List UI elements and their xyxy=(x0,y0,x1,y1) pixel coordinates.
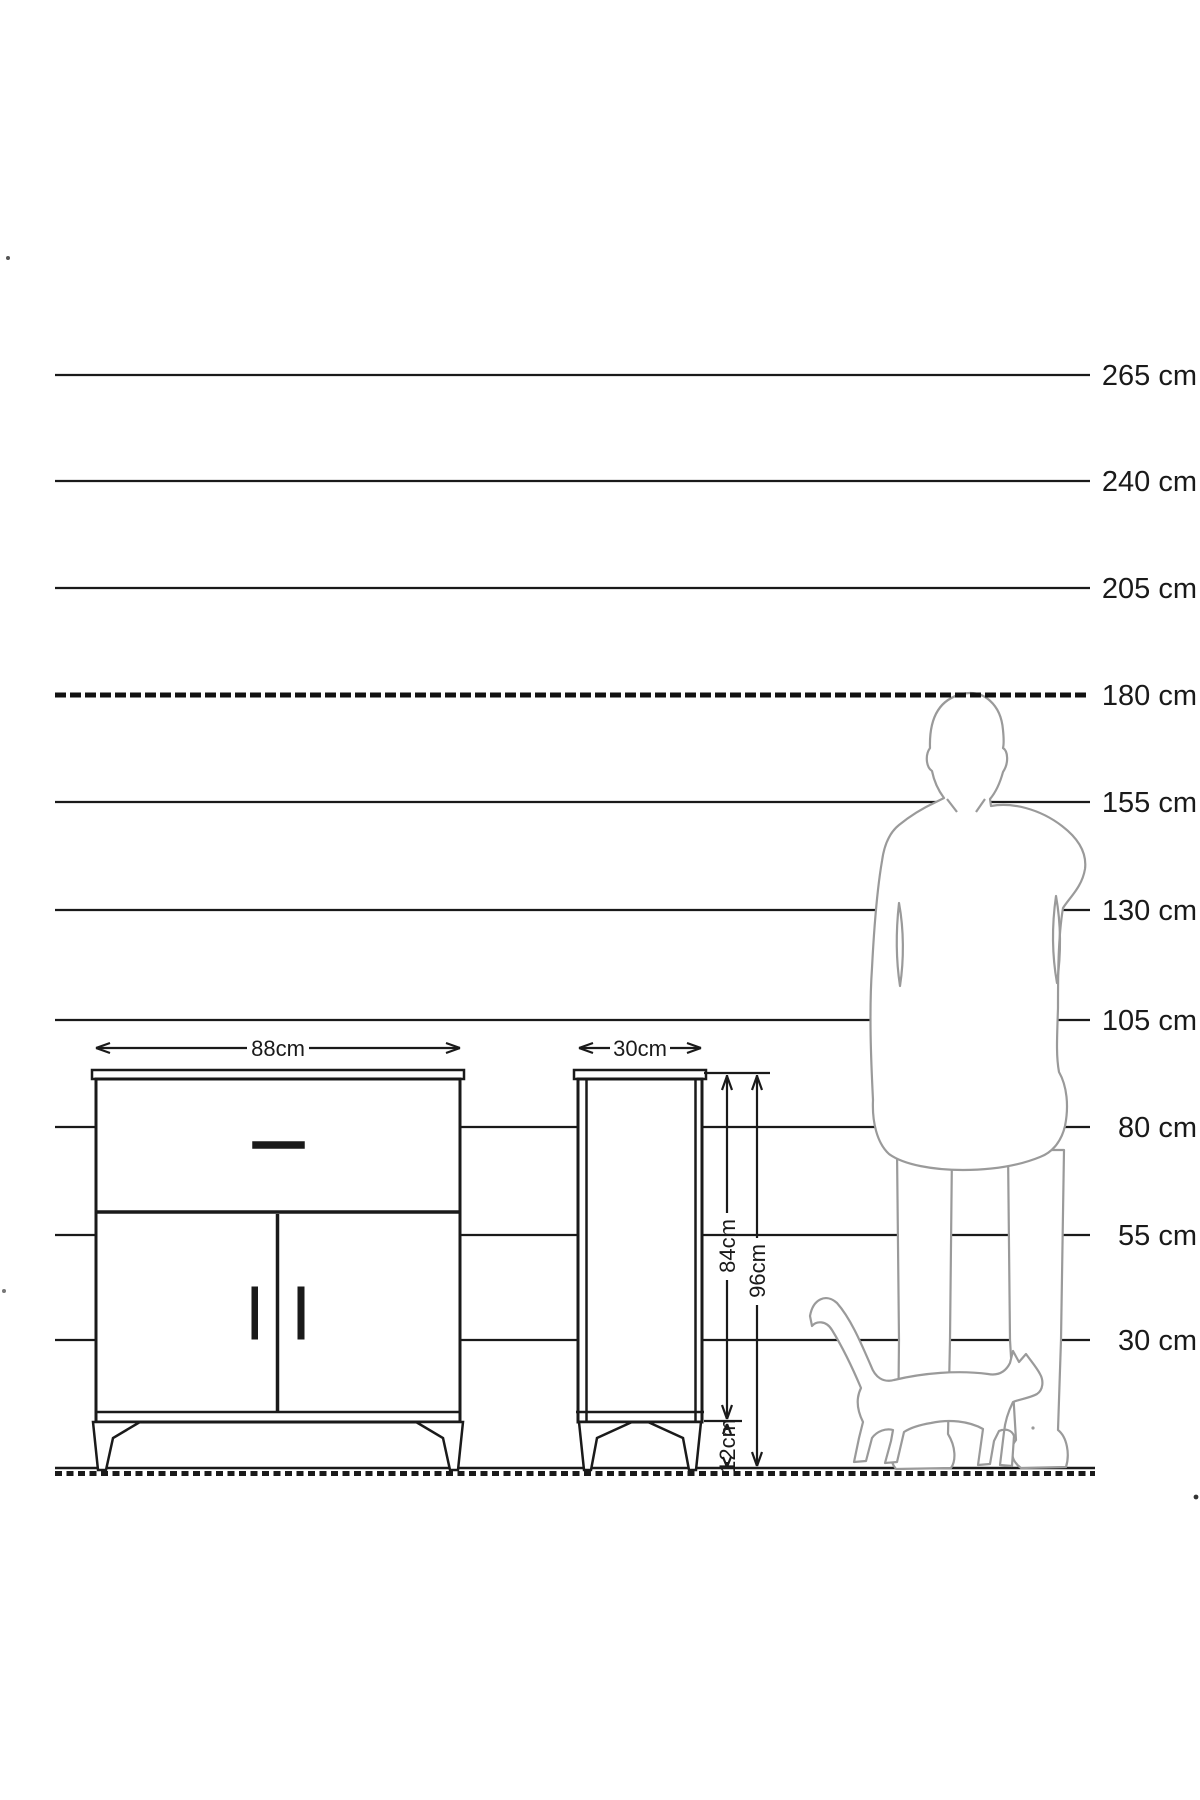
front-leg-left xyxy=(93,1422,140,1470)
scale-label-80cm: 80 cm xyxy=(1118,1112,1197,1144)
depth-dimension-label: 30cm xyxy=(613,1036,667,1061)
leg-height-label: 12cm xyxy=(715,1419,740,1473)
scale-label-155cm: 155 cm xyxy=(1102,787,1197,819)
scale-label-180cm: 180 cm xyxy=(1102,680,1197,712)
side-leg-right xyxy=(648,1422,701,1470)
scale-label-55cm: 55 cm xyxy=(1118,1220,1197,1252)
shoe-detail-dot xyxy=(1031,1426,1034,1429)
width-dimension-label: 88cm xyxy=(251,1036,305,1061)
artifact-dot-bottom-right xyxy=(1194,1495,1199,1500)
scale-label-265cm: 265 cm xyxy=(1102,360,1197,392)
side-leg-left xyxy=(579,1422,632,1470)
body-height-label: 84cm xyxy=(715,1219,740,1273)
front-leg-right xyxy=(416,1422,463,1470)
side-body xyxy=(578,1079,702,1422)
door-handle-right xyxy=(298,1287,304,1339)
artifact-dot-bottom-left xyxy=(2,1289,6,1293)
scale-label-240cm: 240 cm xyxy=(1102,466,1197,498)
man-right-leg xyxy=(1008,1150,1068,1468)
scale-label-105cm: 105 cm xyxy=(1102,1005,1197,1037)
sideboard-side-view xyxy=(574,1070,706,1470)
scale-label-30cm: 30 cm xyxy=(1118,1325,1197,1357)
total-height-label: 96cm xyxy=(745,1244,770,1298)
man-silhouette xyxy=(870,693,1085,1469)
scale-label-130cm: 130 cm xyxy=(1102,895,1197,927)
sideboard-front-view xyxy=(92,1070,464,1470)
scale-label-205cm: 205 cm xyxy=(1102,573,1197,605)
artifact-dot-top-left xyxy=(6,256,10,260)
door-handle-left xyxy=(252,1287,258,1339)
drawer-handle xyxy=(253,1142,304,1148)
furniture-dimension-diagram: 265 cm 240 cm 205 cm 180 cm 155 cm 130 c… xyxy=(0,0,1200,1800)
